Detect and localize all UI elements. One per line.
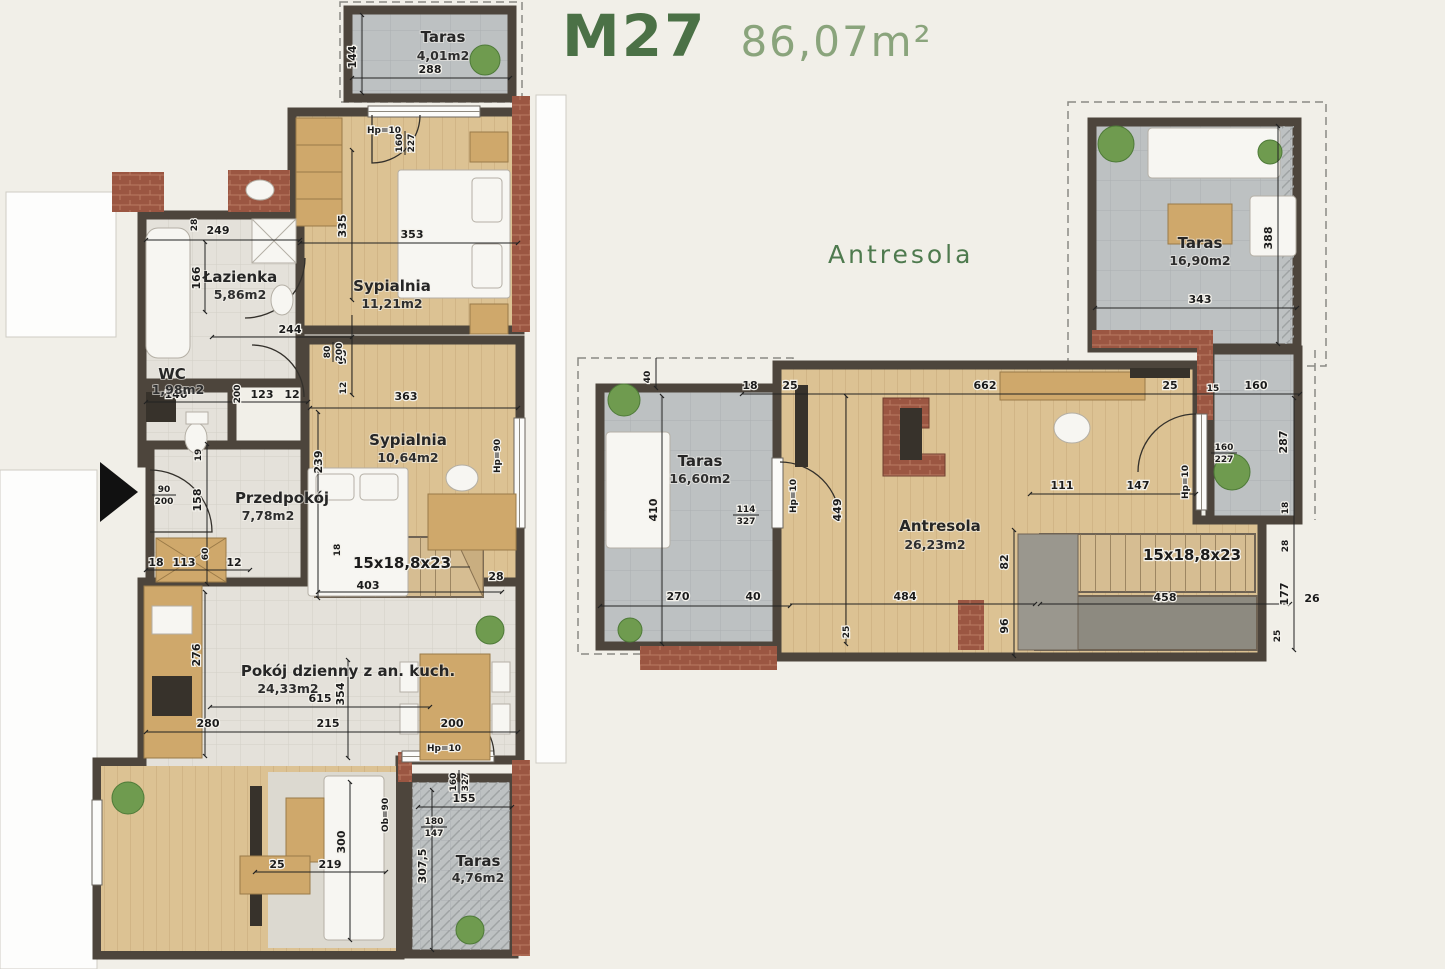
room-name: Sypialnia (353, 277, 431, 295)
room-area: 7,78m2 (242, 508, 295, 523)
chair (492, 662, 510, 692)
dimension-label: 82 (998, 554, 1011, 569)
dimension-label: 200 (441, 717, 464, 730)
room-area: 10,64m2 (377, 450, 438, 465)
plant (456, 916, 484, 944)
dimension-label: 12 (339, 382, 349, 395)
svg-text:147: 147 (425, 829, 444, 839)
desk-bedroom (428, 494, 516, 550)
chair (492, 704, 510, 734)
room-area: 16,90m2 (1169, 253, 1230, 268)
room-area: 4,01m2 (417, 48, 470, 63)
bathtub (146, 228, 190, 358)
floorplan-page: M27 86,07m² Antresola (0, 0, 1445, 969)
svg-text:160: 160 (395, 134, 405, 153)
nightstand (470, 304, 508, 334)
dimension-label: 388 (1262, 227, 1275, 250)
dimension-label: 270 (667, 590, 690, 603)
dimension-label: 147 (1127, 479, 1150, 492)
svg-text:327: 327 (461, 773, 471, 792)
stairs-label: 15x18,8x23 (353, 554, 451, 572)
svg-text:200: 200 (155, 497, 174, 507)
room-name: Taras (678, 452, 723, 470)
wc-cistern (186, 412, 208, 424)
svg-text:160: 160 (1215, 443, 1234, 453)
dimension-label: 244 (279, 323, 302, 336)
dimension-label: 200 (233, 385, 243, 404)
dimension-label: 335 (336, 215, 349, 238)
chair (446, 465, 478, 491)
plan-main: 144 288 249 28 166 335 353 Hp=10 160 227… (92, 2, 530, 956)
dimension-label: 363 (395, 390, 418, 403)
dimension-label: 239 (312, 451, 325, 474)
dimension-label: 662 (974, 379, 997, 392)
dimension-label: 40 (745, 590, 761, 603)
plant (1098, 126, 1134, 162)
dimension-label: 28 (190, 219, 200, 232)
room-area: 16,60m2 (669, 471, 730, 486)
dimension-label: 28 (488, 570, 503, 583)
room-area: 26,23m2 (904, 537, 965, 552)
dimension-label: 287 (1277, 431, 1290, 454)
dimension-label: Hp=90 (493, 439, 503, 473)
plant (618, 618, 642, 642)
chair (400, 704, 418, 734)
dimension-label: 249 (207, 224, 230, 237)
room-area: 11,21m2 (361, 296, 422, 311)
dimension-label: 18 (742, 379, 757, 392)
dimension-label: 343 (1189, 293, 1212, 306)
dimension-label: 300 (335, 830, 348, 853)
shelf (795, 385, 808, 467)
dimension-label: 26 (1304, 592, 1320, 605)
dimension-label: 353 (401, 228, 424, 241)
room-name: Sypialnia (369, 431, 447, 449)
dimension-label: 158 (191, 489, 204, 512)
dimension-label: Hp=10 (1181, 465, 1191, 499)
sink (246, 180, 274, 200)
svg-text:227: 227 (1215, 455, 1234, 465)
plant (112, 782, 144, 814)
dimension-label: 410 (647, 498, 660, 521)
dimension-label: 288 (419, 63, 442, 76)
dimension-label: 25 (842, 626, 852, 639)
svg-text:160: 160 (449, 773, 459, 792)
plan-upper: 343 388 40 18 25 662 25 15 160 287 18 28… (578, 102, 1326, 670)
room-name: Pokój dzienny z an. kuch. (241, 662, 455, 680)
dimension-label: 60 (201, 548, 211, 561)
room-area: 5,86m2 (214, 287, 267, 302)
dimension-label: 12 (226, 556, 241, 569)
room-area: 1,98m2 (152, 382, 205, 397)
dimension-label: 123 (251, 388, 274, 401)
dimension-label: 12 (284, 388, 299, 401)
plant (608, 384, 640, 416)
coffee-table (286, 798, 324, 862)
dimension-label: 155 (453, 792, 476, 805)
pillow (360, 474, 398, 500)
room-name: WC (158, 365, 186, 383)
dimension-label: 144 (346, 45, 359, 68)
room-name: Taras (456, 852, 501, 870)
dimension-label: 280 (197, 717, 220, 730)
plant (476, 616, 504, 644)
dimension-label: 15 (1207, 384, 1220, 394)
dimension-label: 25 (269, 858, 284, 871)
svg-text:90: 90 (158, 485, 171, 495)
dimension-label: 307,5 (416, 849, 429, 884)
dimension-label: 28 (1281, 540, 1291, 553)
sideboard (1130, 368, 1190, 378)
dimension-label: 166 (190, 266, 203, 289)
room-name: Łazienka (202, 268, 278, 286)
room-area: 4,76m2 (452, 870, 505, 885)
dimension-label: 458 (1154, 591, 1177, 604)
svg-text:200: 200 (335, 343, 345, 362)
dimension-label: Hp=10 (427, 744, 461, 754)
dimension-label: 113 (173, 556, 196, 569)
room-name: Przedpokój (235, 489, 329, 507)
dimension-label: 403 (357, 579, 380, 592)
dimension-label: 18 (333, 544, 343, 557)
room-name: Taras (1178, 234, 1223, 252)
stairs-label: 15x18,8x23 (1143, 546, 1241, 564)
svg-text:227: 227 (407, 134, 417, 153)
room-area: 24,33m2 (257, 681, 318, 696)
cooktop (152, 676, 192, 716)
pillow (472, 244, 502, 288)
svg-text:180: 180 (425, 817, 444, 827)
dimension-label: 18 (1281, 502, 1291, 515)
nightstand (470, 132, 508, 162)
room-name: Taras (421, 28, 466, 46)
dimension-label: 25 (782, 379, 797, 392)
dimension-label: 111 (1051, 479, 1074, 492)
desk (1000, 372, 1145, 400)
dimension-label: 449 (831, 499, 844, 522)
entrance-arrow-icon (100, 462, 138, 522)
room-name: Antresola (899, 517, 981, 535)
dimension-label: 276 (190, 643, 203, 666)
sofa (606, 432, 670, 548)
dimension-label: 160 (1245, 379, 1268, 392)
dimension-label: 40 (643, 371, 653, 384)
plant (470, 45, 500, 75)
pillow (472, 178, 502, 222)
dimension-label: 18 (148, 556, 163, 569)
dimension-label: 96 (998, 618, 1011, 634)
svg-text:114: 114 (737, 505, 756, 515)
kitchen-sink (152, 606, 192, 634)
dimension-label: 25 (1273, 630, 1283, 643)
dimension-label: Hp=10 (789, 479, 799, 513)
dimension-label: 25 (1162, 379, 1177, 392)
svg-text:80: 80 (323, 346, 333, 359)
toilet (271, 285, 293, 315)
floorplan-drawing: 144 288 249 28 166 335 353 Hp=10 160 227… (0, 0, 1445, 969)
dimension-label: Ob=90 (381, 798, 391, 832)
chair (1054, 413, 1090, 443)
dimension-label: 354 (334, 682, 347, 705)
dimension-label: 19 (194, 449, 204, 462)
dimension-label: 484 (894, 590, 917, 603)
dimension-label: 215 (317, 717, 340, 730)
dimension-label: 177 (1278, 583, 1291, 606)
wc-toilet (185, 423, 207, 453)
dimension-label: 219 (319, 858, 342, 871)
svg-text:327: 327 (737, 517, 756, 527)
